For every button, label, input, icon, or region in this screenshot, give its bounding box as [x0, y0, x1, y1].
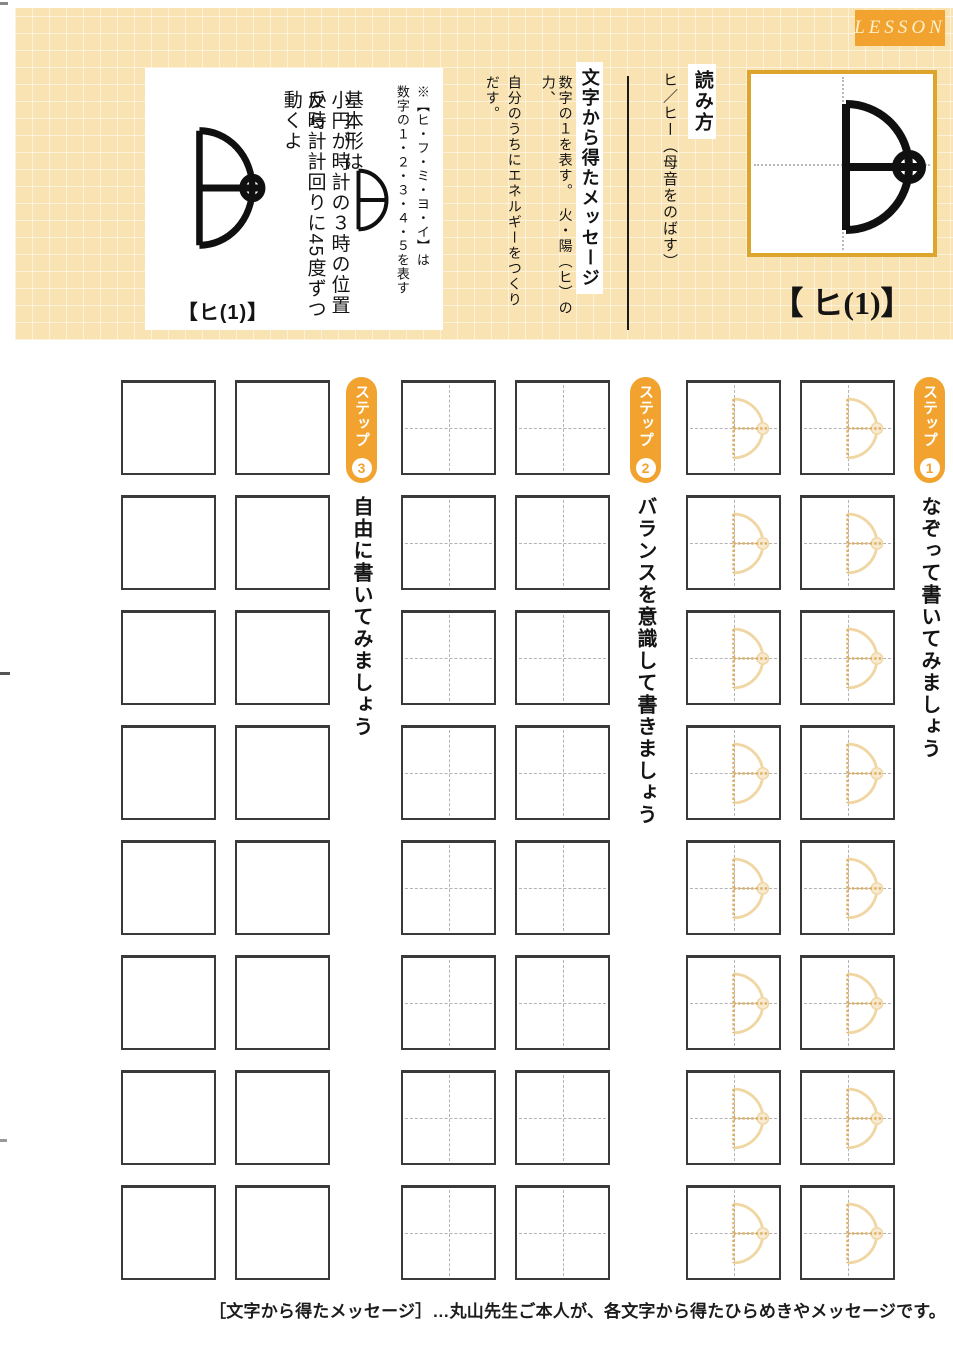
square-guide-vertical — [449, 385, 450, 471]
message-line: 数字の１を表す。 火・陽（ヒ）の力、 — [538, 75, 572, 335]
practice-grid-step-2 — [401, 380, 613, 1280]
practice-square — [800, 380, 895, 475]
footnote: ［文字から得たメッセージ］…丸山先生ご本人が、各文字から得たひらめきやメッセージ… — [209, 1297, 946, 1322]
practice-square — [235, 840, 330, 935]
practice-square — [800, 840, 895, 935]
practice-square — [515, 495, 610, 590]
hi-glyph-trace — [688, 613, 779, 703]
practice-square — [401, 1185, 496, 1280]
practice-square — [121, 495, 216, 590]
practice-square — [121, 610, 216, 705]
practice-square — [401, 610, 496, 705]
practice-square — [800, 725, 895, 820]
message-heading: 文字から得たメッセージ — [576, 62, 603, 294]
hi-glyph-trace — [688, 958, 779, 1048]
character-glyph-box — [747, 70, 937, 257]
practice-square — [121, 1185, 216, 1280]
step-badge-label: ステップ — [919, 384, 940, 448]
practice-square — [121, 840, 216, 935]
square-guide-vertical — [449, 730, 450, 816]
explain-line: 反時計計回りに45度ずつ動くよ — [279, 90, 327, 330]
note-line: 数字の１・２・３・４・５を表す — [393, 85, 410, 315]
hi-glyph-trace — [802, 843, 893, 933]
section-divider — [627, 76, 629, 330]
hi-glyph-main — [838, 97, 948, 237]
step-3-instruction: 自由に書いてみましょう — [350, 496, 372, 738]
hi-glyph-trace — [688, 383, 779, 473]
step-badge-label: ステップ — [635, 384, 656, 448]
square-guide-vertical — [449, 1190, 450, 1276]
practice-square — [686, 1185, 781, 1280]
lesson-badge-label: LESSON — [854, 17, 946, 39]
hi-glyph-trace — [688, 1073, 779, 1163]
practice-square — [235, 725, 330, 820]
practice-square — [686, 955, 781, 1050]
practice-square — [515, 955, 610, 1050]
square-guide-vertical — [563, 960, 564, 1046]
crop-mark — [0, 1139, 7, 1142]
hi-glyph-basic-form — [355, 168, 390, 232]
step-1-badge: ステップ 1 — [914, 377, 945, 483]
square-guide-vertical — [449, 1075, 450, 1161]
practice-square — [401, 380, 496, 475]
practice-square — [800, 1185, 895, 1280]
practice-square — [401, 495, 496, 590]
info-box: ※【ヒ・フ・ミ・ヨ・イ】は 数字の１・２・３・４・５を表す 基本形は 小円が時計… — [145, 68, 443, 330]
lesson-badge: LESSON — [855, 10, 945, 46]
step-2-instruction: バランスを意識して書きましょう — [634, 496, 656, 826]
hi-glyph-trace — [802, 958, 893, 1048]
square-guide-vertical — [449, 615, 450, 701]
hi-glyph-trace — [688, 1188, 779, 1278]
hi-glyph-trace — [802, 1073, 893, 1163]
square-guide-vertical — [563, 1075, 564, 1161]
step-3-badge: ステップ 3 — [346, 377, 377, 483]
practice-square — [515, 840, 610, 935]
practice-square — [401, 725, 496, 820]
practice-square — [800, 495, 895, 590]
practice-grid-step-3 — [121, 380, 333, 1280]
practice-square — [235, 955, 330, 1050]
practice-square — [235, 1070, 330, 1165]
square-guide-vertical — [563, 845, 564, 931]
hi-glyph-trace — [802, 498, 893, 588]
practice-square — [686, 610, 781, 705]
practice-square — [235, 610, 330, 705]
practice-square — [686, 725, 781, 820]
step-2-badge: ステップ 2 — [630, 377, 661, 483]
message-line: 自分のうちにエネルギーをつくり — [504, 75, 521, 335]
hi-glyph-large — [194, 126, 266, 250]
square-guide-vertical — [449, 960, 450, 1046]
practice-square — [235, 1185, 330, 1280]
practice-square — [515, 1185, 610, 1280]
practice-square — [686, 380, 781, 475]
hi-glyph-trace — [688, 498, 779, 588]
character-title: 【 ヒ(1)】 — [742, 278, 942, 324]
square-guide-vertical — [563, 500, 564, 586]
hi-glyph-trace — [802, 728, 893, 818]
square-guide-vertical — [449, 845, 450, 931]
message-line: だす。 — [482, 75, 499, 335]
practice-square — [401, 1070, 496, 1165]
step-number-badge: 3 — [352, 458, 372, 478]
step-number-badge: 2 — [636, 458, 656, 478]
header-band: LESSON 【 ヒ(1)】 読み方 ヒ／ヒー（母音をのばす） 文字から得たメッ… — [15, 8, 953, 340]
reading-heading: 読み方 — [688, 64, 716, 139]
practice-square — [686, 840, 781, 935]
practice-square — [235, 495, 330, 590]
practice-square — [515, 725, 610, 820]
info-box-caption: 【ヒ(1)】 — [173, 296, 273, 325]
reading-text: ヒ／ヒー（母音をのばす） — [660, 72, 678, 337]
practice-square — [121, 955, 216, 1050]
step-number-badge: 1 — [920, 458, 940, 478]
practice-square — [235, 380, 330, 475]
practice-square — [121, 380, 216, 475]
practice-square — [121, 725, 216, 820]
practice-square — [515, 610, 610, 705]
crop-mark — [0, 672, 10, 675]
practice-square — [686, 495, 781, 590]
practice-square — [800, 955, 895, 1050]
square-guide-vertical — [563, 615, 564, 701]
hi-glyph-trace — [688, 843, 779, 933]
practice-square — [800, 610, 895, 705]
hi-glyph-trace — [802, 613, 893, 703]
note-line: ※【ヒ・フ・ミ・ヨ・イ】は — [413, 85, 430, 315]
practice-square — [515, 380, 610, 475]
practice-square — [800, 1070, 895, 1165]
square-guide-vertical — [449, 500, 450, 586]
hi-glyph-trace — [802, 1188, 893, 1278]
crop-mark — [0, 2, 8, 5]
step-badge-label: ステップ — [351, 384, 372, 448]
hi-glyph-trace — [802, 383, 893, 473]
step-1-instruction: なぞって書いてみましょう — [918, 496, 940, 760]
worksheet-page: { "page": { "lesson_tag": "LESSON", "foo… — [0, 0, 953, 1350]
square-guide-vertical — [563, 1190, 564, 1276]
practice-square — [686, 1070, 781, 1165]
practice-square — [121, 1070, 216, 1165]
hi-glyph-trace — [688, 728, 779, 818]
practice-square — [515, 1070, 610, 1165]
practice-grid-step-1 — [686, 380, 898, 1280]
practice-square — [401, 840, 496, 935]
square-guide-vertical — [563, 385, 564, 471]
practice-square — [401, 955, 496, 1050]
square-guide-vertical — [563, 730, 564, 816]
